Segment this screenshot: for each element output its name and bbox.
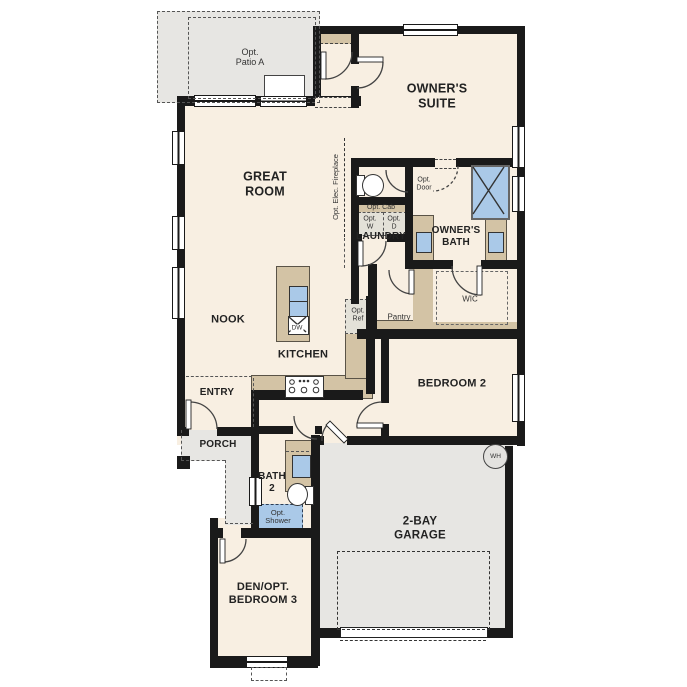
window <box>512 176 525 212</box>
wall <box>217 427 258 436</box>
window <box>172 267 185 319</box>
label-pantry: Pantry <box>387 314 410 323</box>
label-owners-bath: OWNER'S BATH <box>432 225 481 249</box>
wall <box>210 518 218 668</box>
toilet-bowl <box>287 483 308 506</box>
kitchen-sink <box>289 286 308 302</box>
wall <box>405 158 413 268</box>
porch-dash <box>225 523 253 524</box>
label-opt-washer: Opt. W <box>363 215 376 230</box>
label-garage: 2-BAY GARAGE <box>394 515 446 542</box>
label-laundry: LAUNDRY <box>356 231 406 243</box>
shower-owners-bath <box>471 165 510 220</box>
label-kitchen: KITCHEN <box>278 349 328 362</box>
label-opt-ref: Opt. Ref <box>351 307 364 322</box>
opening-vestibule <box>315 97 351 108</box>
entry-dash-top <box>186 376 252 377</box>
kitchen-sink <box>289 301 308 317</box>
label-den-bedroom-3: DEN/OPT. BEDROOM 3 <box>229 581 297 607</box>
label-entry: ENTRY <box>200 387 235 399</box>
wall <box>357 329 525 339</box>
window <box>172 131 185 165</box>
label-wic: WIC <box>462 296 478 305</box>
hall-dash-line <box>344 238 345 268</box>
bath-sink <box>416 232 432 253</box>
wall <box>405 260 453 269</box>
label-opt-cab: Opt. Cab <box>367 204 395 212</box>
den-stoop-outline <box>251 667 287 681</box>
label-dishwasher: DW <box>291 324 304 331</box>
floor-plan: WH <box>0 0 687 687</box>
wall <box>351 158 435 167</box>
window <box>172 216 185 250</box>
bath-sink <box>292 455 311 478</box>
bath-sink <box>488 232 504 253</box>
label-opt-patio: Opt. Patio A <box>236 48 265 68</box>
wall <box>351 26 359 64</box>
water-heater: WH <box>483 444 508 469</box>
window <box>512 126 525 168</box>
range <box>285 376 324 398</box>
label-opt-dryer: Opt. D <box>387 215 400 230</box>
wall <box>481 260 525 269</box>
label-bath-2: BATH 2 <box>258 471 286 495</box>
opening-opt-door <box>435 159 456 169</box>
wall <box>381 339 389 403</box>
pantry-wic-divider <box>413 266 433 332</box>
wall <box>177 427 189 436</box>
wall <box>177 456 190 469</box>
wall <box>311 436 324 445</box>
label-opt-elec-fireplace: Opt. Elec. Fireplace <box>332 154 340 220</box>
toilet-bowl <box>362 174 384 197</box>
label-opt-shower: Opt. Shower <box>265 509 290 526</box>
wall <box>241 528 318 538</box>
label-owners-suite: OWNER'S SUITE <box>407 81 468 111</box>
bath2-vanity-dash <box>286 451 314 452</box>
window <box>403 24 458 36</box>
garage-door-dash <box>340 640 486 641</box>
wall <box>505 446 513 638</box>
fireplace-dash-line <box>344 138 345 237</box>
window <box>512 374 525 422</box>
wall <box>210 528 223 538</box>
wall <box>351 86 359 108</box>
label-opt-door: Opt. Door <box>416 176 431 191</box>
porch-dash <box>181 430 182 460</box>
label-great-room: GREAT ROOM <box>243 169 287 199</box>
garage-bay-outline <box>337 551 490 630</box>
wall <box>366 296 375 394</box>
wall <box>315 426 322 434</box>
wall <box>311 435 320 666</box>
label-nook: NOOK <box>211 314 245 327</box>
porch-dash <box>225 460 226 524</box>
label-porch: PORCH <box>199 439 236 451</box>
entry-dash-right <box>253 378 254 427</box>
porch-dash <box>181 460 225 461</box>
label-bedroom-2: BEDROOM 2 <box>418 378 486 391</box>
